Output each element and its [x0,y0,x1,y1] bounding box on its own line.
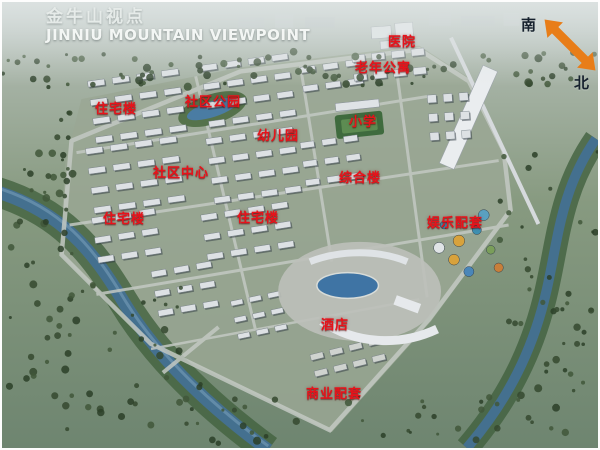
central-lake-plaza [278,242,441,341]
map-label: 住宅楼 [237,207,279,226]
map-label: 综合楼 [339,167,381,186]
map-label: 住宅楼 [95,98,137,117]
aerial-rendering [2,2,598,448]
haze-overlay [2,2,598,86]
map-label: 住宅楼 [103,208,145,227]
map-label: 商业配套 [306,383,362,402]
map-label: 老年公寓 [355,57,411,76]
compass-arrow-icon [530,6,600,90]
map-label: 社区公园 [185,91,241,110]
map-label: 娱乐配套 [427,212,483,231]
compass-north-label: 北 [574,72,589,93]
map-label: 社区中心 [153,162,209,181]
map-label: 医院 [388,31,416,50]
map-label: 小学 [349,111,377,130]
compass-south-label: 南 [521,14,536,35]
map-label: 酒店 [321,314,349,333]
map-label: 幼儿园 [257,125,299,144]
viewpoint-rendering-frame: 金牛山视点 JINNIU MOUNTAIN VIEWPOINT 南 北 医院老年… [0,0,600,450]
